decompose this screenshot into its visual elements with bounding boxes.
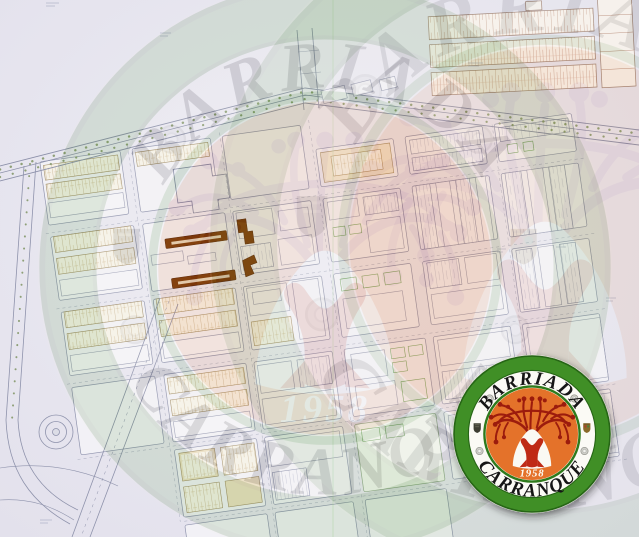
city-plan-map: BARRIADA CARRANQUE 1958 <box>0 0 639 537</box>
carranque-plan-screenshot: BARRIADA CARRANQUE 1958 <box>0 0 639 537</box>
barriada-carranque-badge <box>453 355 611 513</box>
